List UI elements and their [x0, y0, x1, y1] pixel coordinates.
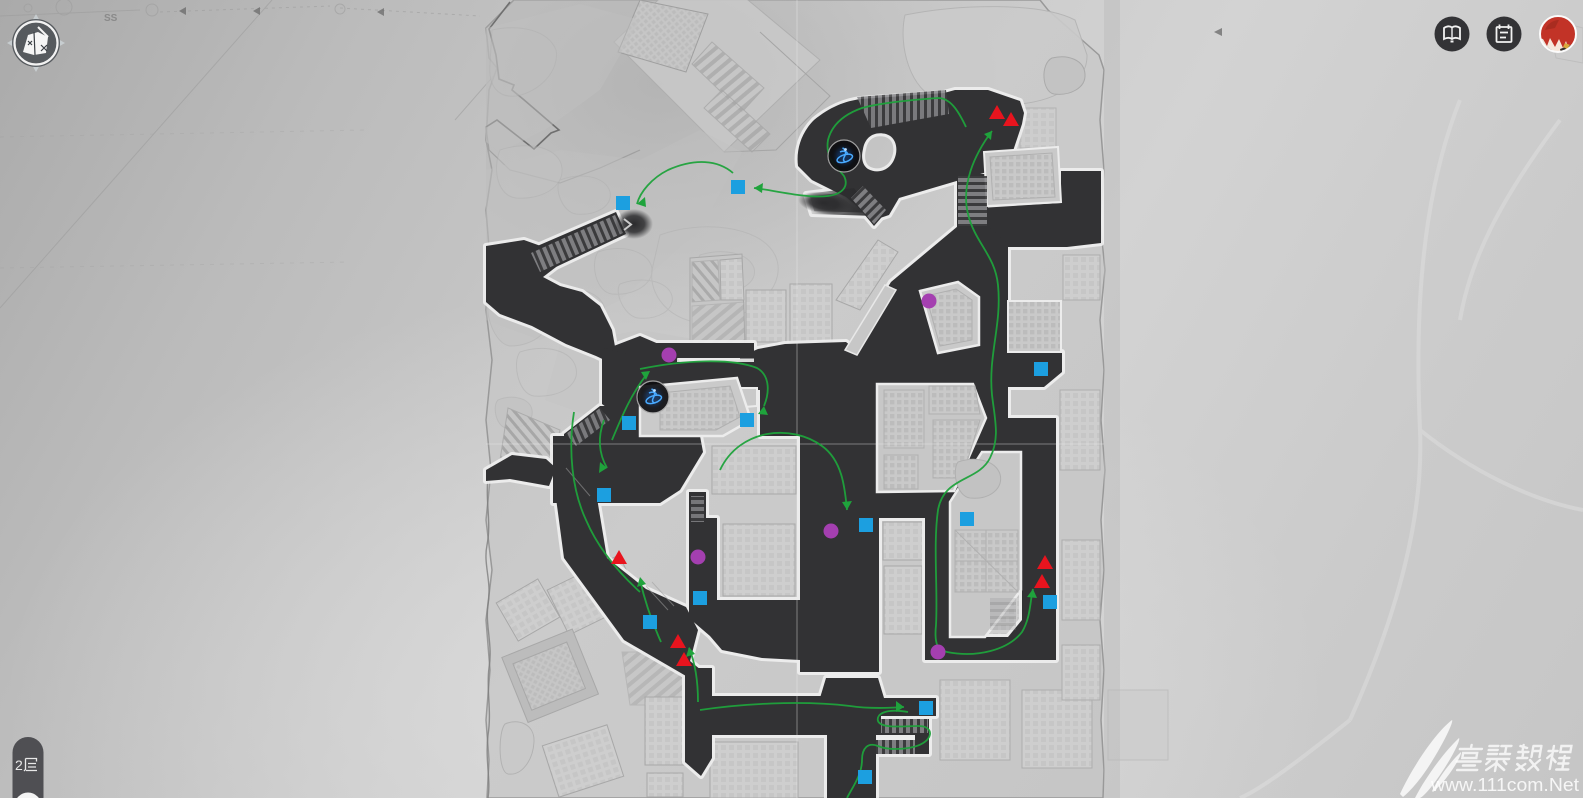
svg-text:www.111com.Net: www.111com.Net [1430, 775, 1579, 795]
svg-text:2: 2 [15, 757, 23, 773]
svg-text:SS: SS [104, 13, 118, 24]
